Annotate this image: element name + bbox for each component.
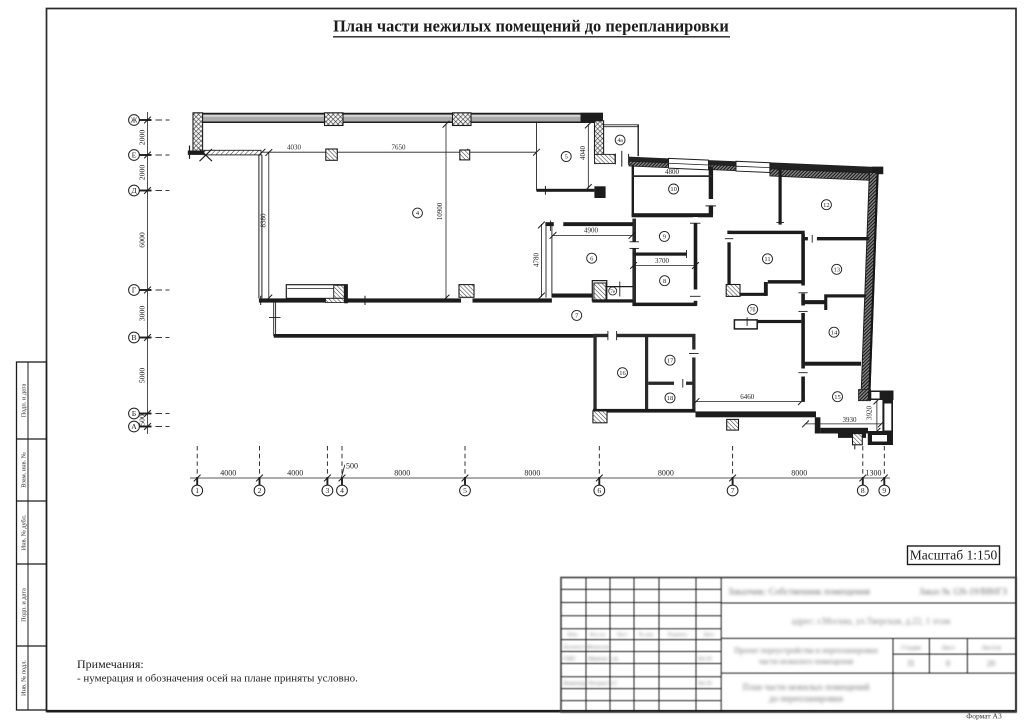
svg-text:Инв. № дубл.: Инв. № дубл. — [21, 514, 28, 550]
svg-text:В: В — [131, 333, 136, 342]
svg-text:Г: Г — [132, 286, 137, 295]
svg-text:Петров В.Г.: Петров В.Г. — [588, 681, 618, 687]
svg-text:7: 7 — [731, 486, 735, 495]
svg-text:Подпись: Подпись — [668, 632, 688, 638]
svg-text:15: 15 — [834, 394, 841, 401]
svg-text:Проект переустройства и перепл: Проект переустройства и перепланировки — [734, 646, 878, 655]
svg-text:11: 11 — [764, 256, 770, 263]
svg-text:7е: 7е — [610, 289, 616, 295]
svg-text:А: А — [131, 422, 137, 431]
svg-text:2: 2 — [258, 486, 262, 495]
svg-text:до перепланировки: до перепланировки — [769, 694, 843, 704]
svg-text:14: 14 — [831, 329, 838, 336]
svg-text:Масштаб 1:150: Масштаб 1:150 — [910, 548, 998, 563]
svg-text:- нумерация и обозначения осей: - нумерация и обозначения осей на плане … — [77, 673, 358, 685]
svg-text:Примечания:: Примечания: — [77, 657, 144, 671]
svg-text:Е: Е — [132, 151, 137, 160]
svg-text:7650: 7650 — [392, 144, 407, 152]
svg-text:10: 10 — [670, 186, 677, 193]
svg-text:4000: 4000 — [287, 469, 303, 478]
svg-text:500: 500 — [346, 462, 358, 471]
svg-text:3: 3 — [326, 486, 330, 495]
svg-text:План части нежилых помещений д: План части нежилых помещений до переплан… — [333, 17, 729, 36]
svg-text:3930: 3930 — [843, 416, 858, 424]
svg-text:Инв. № подл.: Инв. № подл. — [21, 660, 28, 696]
svg-text:500: 500 — [138, 414, 147, 426]
svg-text:Кол.уч.: Кол.уч. — [590, 632, 606, 638]
svg-text:5000: 5000 — [138, 368, 147, 384]
svg-text:5: 5 — [463, 486, 467, 495]
svg-text:13: 13 — [833, 267, 840, 274]
svg-text:Иванов А.Б.: Иванов А.Б. — [588, 657, 620, 663]
svg-text:П: П — [908, 658, 914, 668]
svg-text:16: 16 — [619, 370, 626, 377]
svg-text:4а: 4а — [617, 138, 623, 144]
svg-text:8000: 8000 — [791, 469, 807, 478]
svg-text:20: 20 — [987, 658, 996, 668]
svg-text:8000: 8000 — [394, 469, 410, 478]
svg-text:8000: 8000 — [524, 469, 540, 478]
svg-text:8: 8 — [946, 658, 950, 668]
svg-text:Ж: Ж — [131, 116, 138, 125]
svg-text:2000: 2000 — [138, 130, 147, 146]
svg-text:адрес: г.Москва, ул.Тверская,: адрес: г.Москва, ул.Тверская, д.22, 1 эт… — [791, 616, 951, 626]
svg-text:части нежилого помещения: части нежилого помещения — [759, 657, 854, 666]
svg-text:План части нежилых помещений: План части нежилых помещений — [743, 682, 870, 692]
svg-text:Формат А3: Формат А3 — [966, 712, 1002, 721]
svg-text:4900: 4900 — [584, 227, 599, 235]
svg-text:4040: 4040 — [579, 146, 587, 161]
svg-text:Заказчик: Собственник помещени: Заказчик: Собственник помещения — [728, 587, 870, 598]
svg-text:Подп. и дата: Подп. и дата — [21, 588, 28, 622]
svg-text:6: 6 — [597, 486, 601, 495]
svg-text:9: 9 — [882, 486, 886, 495]
svg-text:10900: 10900 — [436, 202, 444, 220]
svg-text:Заказ № 126-19/ВВ0ГЗ: Заказ № 126-19/ВВ0ГЗ — [919, 587, 1007, 597]
svg-text:7б: 7б — [750, 306, 756, 313]
svg-text:4800: 4800 — [665, 168, 680, 176]
svg-text:Должность: Должность — [563, 645, 590, 651]
svg-text:12: 12 — [823, 202, 830, 209]
svg-text:Инженер: Инженер — [563, 681, 586, 687]
svg-text:17: 17 — [667, 357, 674, 364]
svg-text:3920: 3920 — [866, 406, 874, 421]
svg-text:Лист: Лист — [616, 632, 628, 638]
svg-text:8000: 8000 — [658, 469, 674, 478]
svg-text:3700: 3700 — [655, 257, 670, 265]
svg-text:3000: 3000 — [138, 306, 147, 322]
svg-text:Д: Д — [131, 186, 137, 195]
svg-text:8380: 8380 — [260, 213, 268, 228]
svg-text:Листов: Листов — [981, 645, 1001, 652]
svg-text:Дата: Дата — [703, 632, 714, 638]
svg-text:4780: 4780 — [532, 253, 540, 268]
svg-text:4000: 4000 — [220, 469, 236, 478]
svg-text:2000: 2000 — [138, 165, 147, 181]
svg-text:Подп. и дата: Подп. и дата — [21, 383, 28, 417]
svg-text:8: 8 — [861, 486, 865, 495]
svg-text:4: 4 — [340, 486, 344, 495]
svg-text:ГИП: ГИП — [563, 657, 576, 663]
svg-text:Лист: Лист — [941, 645, 955, 652]
svg-text:18: 18 — [667, 395, 674, 402]
svg-text:04.19: 04.19 — [698, 657, 712, 663]
svg-text:4030: 4030 — [287, 144, 302, 152]
svg-text:Фамилия: Фамилия — [588, 645, 610, 651]
svg-text:Изм.: Изм. — [568, 632, 579, 638]
svg-text:Стадия: Стадия — [901, 645, 921, 652]
svg-text:№ док.: № док. — [639, 632, 655, 638]
svg-text:6460: 6460 — [740, 393, 755, 401]
svg-text:Б: Б — [132, 409, 137, 418]
svg-text:8: 8 — [663, 278, 666, 285]
svg-text:1: 1 — [195, 486, 199, 495]
svg-text:04.19: 04.19 — [698, 681, 712, 687]
svg-text:1300: 1300 — [866, 469, 882, 478]
svg-text:Взам. инв. №: Взам. инв. № — [21, 452, 28, 488]
svg-text:9: 9 — [663, 234, 666, 241]
svg-text:6000: 6000 — [138, 232, 147, 248]
svg-text:5: 5 — [565, 154, 568, 161]
